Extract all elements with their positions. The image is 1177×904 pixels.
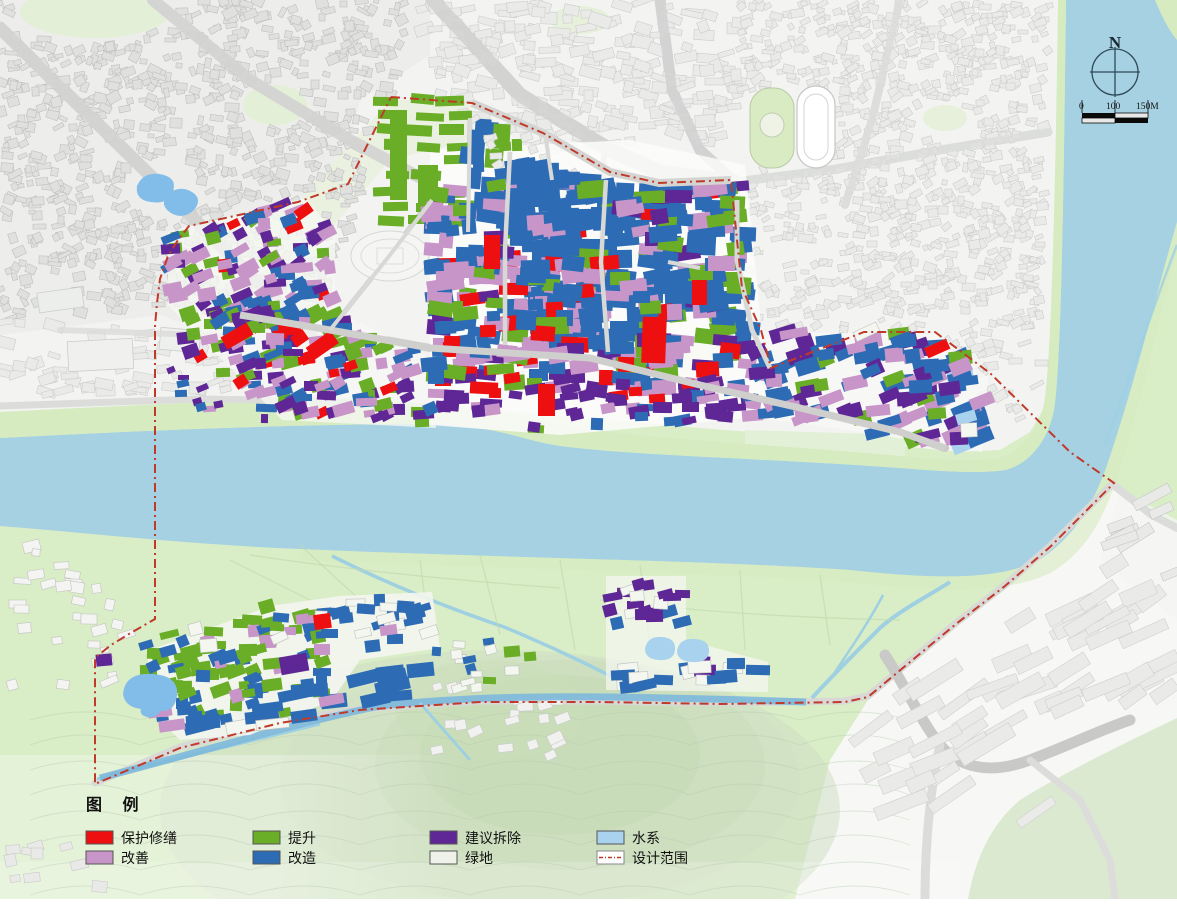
svg-text:设计范围: 设计范围 — [632, 850, 688, 866]
svg-text:保护修缮: 保护修缮 — [121, 830, 177, 846]
svg-text:0: 0 — [1079, 102, 1084, 112]
svg-text:提升: 提升 — [288, 830, 316, 846]
svg-text:改造: 改造 — [288, 850, 316, 866]
svg-text:水系: 水系 — [632, 830, 660, 846]
svg-text:绿地: 绿地 — [465, 850, 493, 866]
svg-text:100: 100 — [1106, 102, 1121, 112]
svg-text:图 例: 图 例 — [86, 795, 146, 814]
svg-text:改善: 改善 — [121, 850, 149, 866]
svg-text:建议拆除: 建议拆除 — [465, 830, 521, 846]
